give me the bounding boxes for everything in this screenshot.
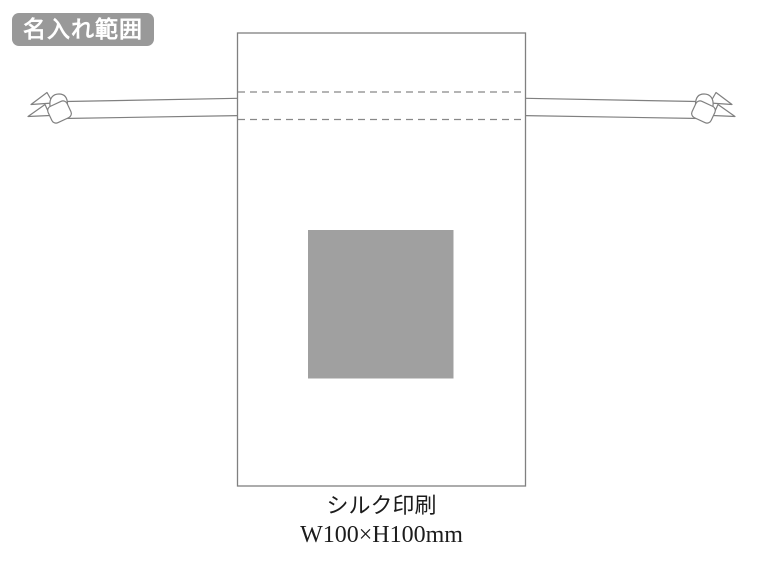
drawstring-cord-right [526, 98, 701, 118]
print-area [308, 230, 454, 379]
print-size-label: W100×H100mm [237, 520, 526, 550]
print-spec-caption: シルク印刷 W100×H100mm [237, 492, 526, 550]
drawstring-cord-left [63, 98, 238, 118]
drawstring-pouch-illustration [0, 0, 760, 570]
drawstring-knot-right-icon [690, 93, 735, 125]
drawstring-knot-left-icon [28, 93, 73, 125]
print-area-badge: 名入れ範囲 [12, 13, 154, 46]
print-area-badge-label: 名入れ範囲 [23, 18, 143, 41]
print-method-label: シルク印刷 [237, 492, 526, 520]
